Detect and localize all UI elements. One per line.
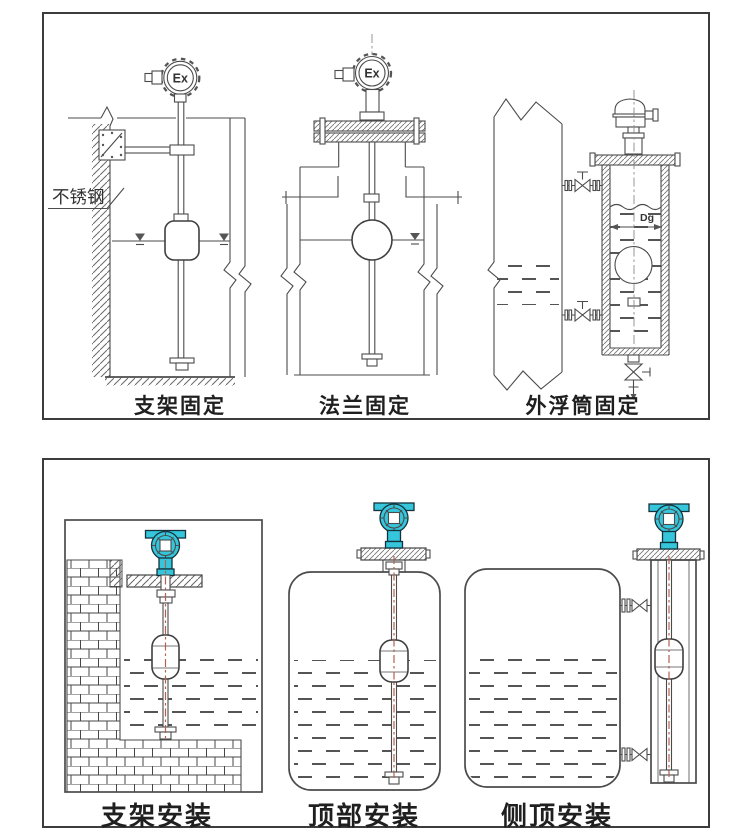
- tank-wall: [224, 118, 251, 377]
- flange-bolt: [320, 118, 325, 144]
- ground-hatch: [105, 378, 235, 386]
- installation-methods-drawing: [44, 460, 708, 826]
- bracket-fixing-diagram: Ex 不锈钢: [48, 59, 251, 386]
- brick-wall: [67, 560, 120, 792]
- float-ball: [352, 220, 392, 260]
- ex-transmitter-head: Ex: [335, 54, 391, 92]
- caption-bracket-fixing: 支架固定: [134, 390, 226, 420]
- ex-label: Ex: [173, 72, 188, 86]
- transmitter-head: [613, 99, 658, 154]
- caption-flange-fixing: 法兰固定: [319, 390, 411, 420]
- float: [165, 221, 199, 260]
- wall-hatch: [92, 124, 110, 377]
- fixing-methods-panel: Ex 不锈钢 Ex: [42, 12, 710, 420]
- connection-pipes: [562, 186, 602, 316]
- chamber-flange: [595, 155, 675, 165]
- flange-bolt: [675, 153, 680, 166]
- level-symbol: [135, 234, 145, 242]
- material-label: 不锈钢: [52, 187, 105, 207]
- flange-bolt: [414, 118, 419, 144]
- cable-gland: [343, 68, 354, 81]
- bracket-corner: [110, 560, 122, 587]
- flange-fixing-diagram: Ex: [281, 34, 462, 375]
- tank-liquid: [497, 260, 559, 305]
- cable-gland: [645, 111, 653, 119]
- transmitter-head: [374, 503, 414, 548]
- liquid: [124, 649, 258, 734]
- isolation-valve: [565, 302, 600, 322]
- tank-walls: [281, 167, 443, 375]
- caption-side-top-install: 侧顶安装: [501, 796, 613, 833]
- flange-plate: [314, 121, 425, 131]
- liquid-surface: [610, 205, 661, 210]
- rod-clamp: [170, 145, 194, 155]
- rod-stopper: [362, 354, 382, 359]
- neck: [366, 90, 379, 113]
- caption-top-install: 顶部安装: [308, 796, 420, 833]
- level-symbol: [410, 233, 420, 240]
- float-ball: [615, 247, 652, 284]
- ex-transmitter-head: Ex: [145, 59, 199, 102]
- transmitter-head: [146, 531, 186, 576]
- tank-nozzle: [300, 142, 424, 167]
- rod-stopper: [170, 358, 194, 363]
- side-top-install-diagram: [465, 504, 704, 787]
- isolation-valve: [565, 172, 600, 192]
- dg-label: Dg: [640, 212, 654, 224]
- bracket-arm: [125, 147, 170, 153]
- bracket-install-diagram: [65, 520, 262, 792]
- flange-plate: [314, 133, 425, 142]
- caption-external-chamber-fixing: 外浮筒固定: [526, 390, 641, 420]
- liquid: [469, 654, 617, 785]
- external-chamber-fixing-diagram: Dg: [488, 90, 680, 400]
- caption-bracket-install: 支架安装: [101, 796, 213, 833]
- process-tank: [488, 99, 562, 390]
- connection-valve: [620, 748, 651, 761]
- top-install-diagram: [289, 503, 440, 790]
- liquid: [294, 660, 436, 787]
- flange-bolt: [590, 153, 595, 166]
- transmitter-head: [649, 504, 689, 549]
- connection-valve: [620, 599, 651, 612]
- fixing-methods-drawing: Ex 不锈钢 Ex: [44, 14, 708, 418]
- brick-base: [120, 740, 241, 792]
- ceiling-line: [68, 107, 245, 126]
- level-symbol: [219, 234, 229, 242]
- rod-coupling: [364, 194, 379, 202]
- cable-gland: [152, 71, 162, 84]
- page: { "colors": { "line": "#4b4b4b", "panel_…: [0, 0, 750, 840]
- installation-methods-panel: 支架安装 顶部安装 侧顶安装: [42, 458, 710, 828]
- ex-label: Ex: [364, 67, 379, 81]
